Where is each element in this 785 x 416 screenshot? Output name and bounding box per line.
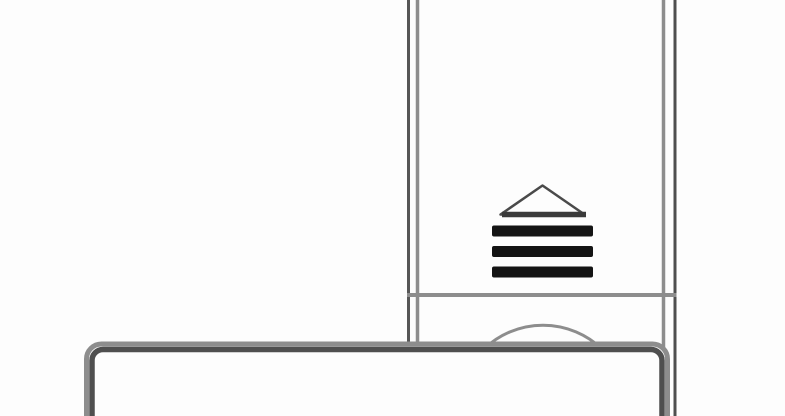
vent-bar-top <box>492 226 593 237</box>
drawing-svg <box>0 0 785 416</box>
base-panel-outer-border <box>87 344 668 416</box>
eject-triangle-icon <box>501 186 585 215</box>
vent-bar-middle <box>492 246 593 257</box>
technical-drawing-canvas <box>0 0 785 416</box>
vent-bar-bottom <box>492 267 593 278</box>
